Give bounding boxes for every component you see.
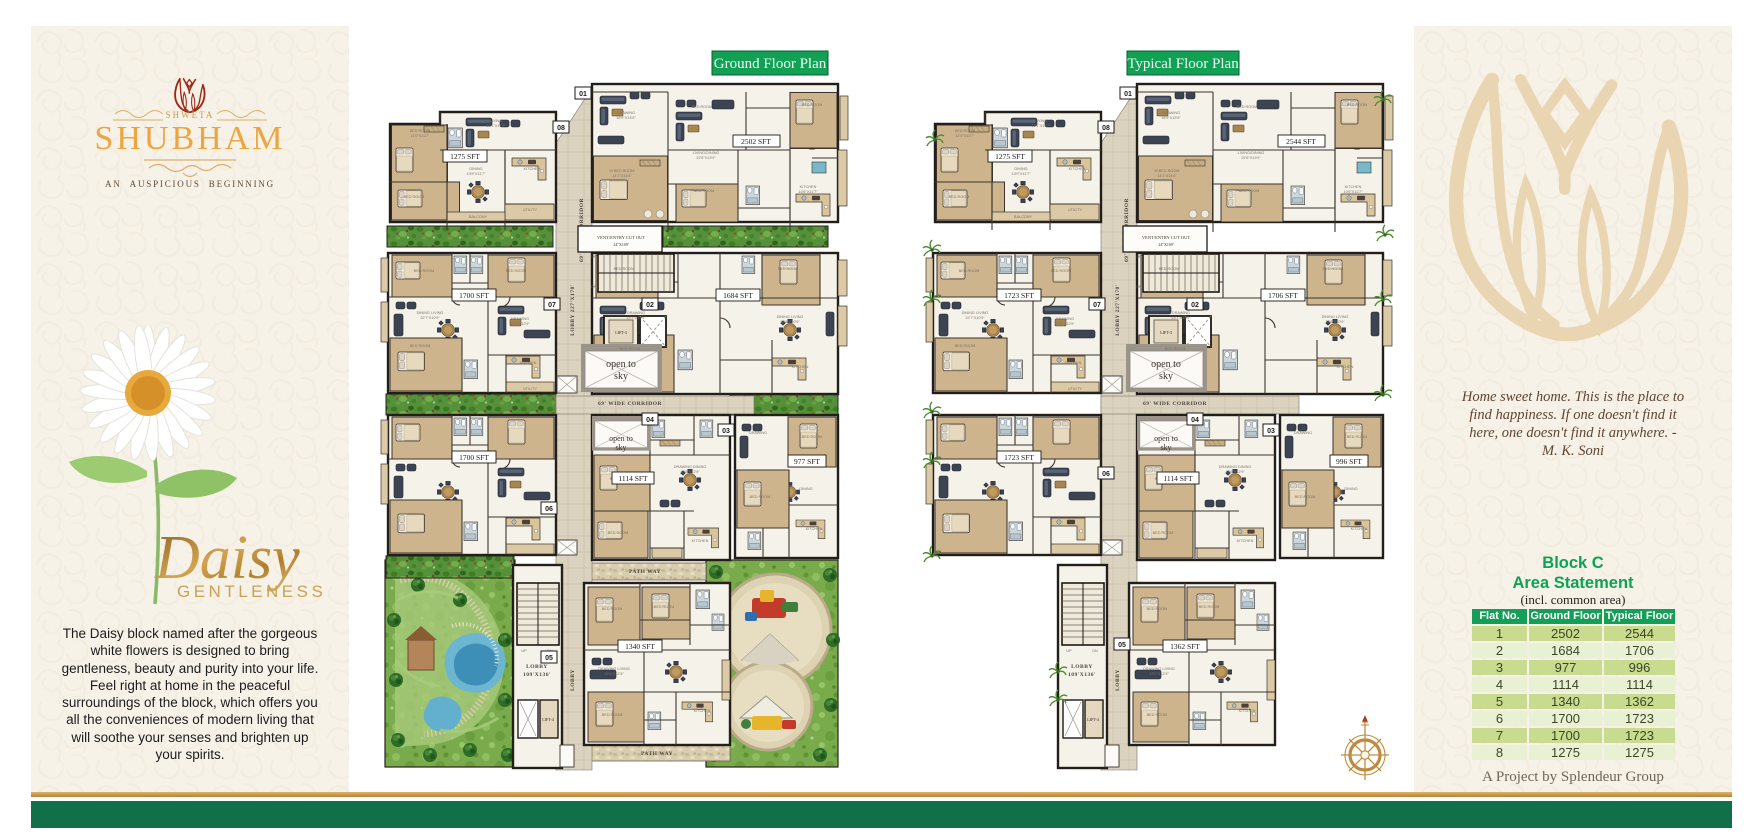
svg-text:UP: UP — [592, 255, 598, 259]
svg-text:03: 03 — [1267, 428, 1275, 435]
svg-text:24"X109': 24"X109' — [613, 242, 629, 247]
svg-text:11'0"X11'7": 11'0"X11'7" — [411, 134, 430, 138]
svg-text:1700 SFT: 1700 SFT — [459, 453, 489, 462]
svg-text:DINING LIVING: DINING LIVING — [777, 315, 804, 319]
svg-text:DN: DN — [591, 285, 597, 289]
svg-text:1362 SFT: 1362 SFT — [1170, 642, 1200, 651]
svg-text:LOBBY: LOBBY — [570, 669, 576, 691]
svg-text:1723 SFT: 1723 SFT — [1004, 291, 1034, 300]
svg-text:02: 02 — [1191, 302, 1199, 309]
svg-text:LOBBY: LOBBY — [526, 664, 548, 670]
svg-text:UP: UP — [521, 649, 527, 653]
svg-text:sky: sky — [615, 443, 626, 452]
svg-text:13'9"X11'7": 13'9"X11'7" — [466, 172, 486, 176]
svg-text:07: 07 — [548, 302, 556, 309]
svg-text:LIVING: LIVING — [490, 119, 502, 123]
svg-text:DRAWING: DRAWING — [511, 317, 529, 321]
svg-text:1706 SFT: 1706 SFT — [1268, 291, 1298, 300]
svg-text:open to: open to — [606, 359, 636, 370]
svg-text:01: 01 — [579, 91, 587, 98]
svg-text:1114 SFT: 1114 SFT — [618, 474, 648, 483]
svg-text:BED ROOM: BED ROOM — [404, 195, 425, 199]
svg-text:06: 06 — [1102, 471, 1110, 478]
svg-text:BED ROOM: BED ROOM — [614, 267, 635, 271]
svg-text:UTILITY: UTILITY — [523, 208, 538, 212]
svg-text:Ground Floor Plan: Ground Floor Plan — [714, 56, 827, 72]
svg-text:LIFT-3: LIFT-3 — [615, 330, 626, 335]
svg-text:DRAWING: DRAWING — [617, 111, 635, 115]
svg-text:open to: open to — [609, 434, 633, 443]
svg-text:996 SFT: 996 SFT — [1336, 457, 1362, 466]
svg-text:16'9"X13'9": 16'9"X13'9" — [616, 116, 636, 120]
svg-text:16'1"X11'7": 16'1"X11'7" — [486, 124, 506, 128]
svg-text:KITCHEN: KITCHEN — [694, 709, 711, 713]
svg-text:05: 05 — [1118, 642, 1126, 649]
svg-text:LIFT-4: LIFT-4 — [542, 717, 553, 722]
svg-text:DRAWING LIVING: DRAWING LIVING — [598, 667, 630, 671]
svg-text:14'1"X14'6": 14'1"X14'6" — [612, 174, 632, 178]
svg-text:M.BED ROOM: M.BED ROOM — [610, 169, 635, 173]
svg-text:13'7"X12'9": 13'7"X12'9" — [626, 316, 646, 320]
svg-text:BED ROOM: BED ROOM — [506, 269, 527, 273]
svg-text:BED ROOM: BED ROOM — [692, 105, 713, 109]
svg-text:DINING LIVING: DINING LIVING — [417, 311, 444, 315]
svg-text:08: 08 — [1102, 125, 1110, 132]
svg-text:22'7"X10'9": 22'7"X10'9" — [420, 316, 440, 320]
svg-text:1723 SFT: 1723 SFT — [1004, 453, 1034, 462]
svg-text:1275 SFT: 1275 SFT — [995, 152, 1025, 161]
svg-text:1684 SFT: 1684 SFT — [723, 291, 753, 300]
svg-text:109'X136': 109'X136' — [523, 672, 551, 678]
svg-text:2502 SFT: 2502 SFT — [741, 137, 771, 146]
svg-text:DRAWING: DRAWING — [627, 311, 645, 315]
svg-text:1114 SFT: 1114 SFT — [1163, 474, 1193, 483]
svg-text:1700 SFT: 1700 SFT — [459, 291, 489, 300]
svg-text:KITCHEN: KITCHEN — [800, 185, 817, 189]
svg-text:PATH WAY: PATH WAY — [629, 569, 661, 575]
svg-text:UTILITY: UTILITY — [523, 387, 538, 391]
svg-text:KITCHEN: KITCHEN — [692, 539, 709, 543]
svg-text:03: 03 — [722, 428, 730, 435]
svg-text:DRAWING: DRAWING — [749, 431, 767, 435]
svg-text:BED ROOM: BED ROOM — [608, 531, 629, 535]
svg-text:977 SFT: 977 SFT — [794, 457, 820, 466]
svg-text:DINING: DINING — [799, 487, 812, 491]
svg-text:VENT/ENTRY CUT OUT: VENT/ENTRY CUT OUT — [597, 235, 645, 240]
svg-text:KITCHEN: KITCHEN — [524, 167, 541, 171]
svg-text:KITCHEN: KITCHEN — [806, 527, 823, 531]
svg-text:08: 08 — [557, 125, 565, 132]
svg-text:BED ROOM: BED ROOM — [414, 269, 435, 273]
svg-text:KITCHEN: KITCHEN — [520, 361, 537, 365]
svg-text:BED ROOM: BED ROOM — [802, 103, 823, 107]
svg-text:13'9"X12'3": 13'9"X12'3" — [604, 672, 624, 676]
svg-text:BED ROOM: BED ROOM — [620, 347, 641, 351]
svg-text:07: 07 — [1093, 302, 1101, 309]
svg-text:PATH WAY: PATH WAY — [641, 751, 673, 757]
svg-text:04: 04 — [1191, 417, 1199, 424]
svg-text:BED ROOM: BED ROOM — [694, 189, 715, 193]
svg-text:KITCHEN: KITCHEN — [792, 365, 809, 369]
svg-text:13'9"X12'9": 13'9"X12'9" — [680, 470, 700, 474]
svg-text:BED ROOM: BED ROOM — [750, 495, 771, 499]
svg-text:BED ROOM: BED ROOM — [602, 713, 623, 717]
svg-text:04: 04 — [646, 417, 654, 424]
svg-text:BALCONY: BALCONY — [469, 215, 488, 219]
svg-text:69' WIDE CORRIDOR: 69' WIDE CORRIDOR — [598, 401, 663, 407]
svg-text:1340 SFT: 1340 SFT — [625, 642, 655, 651]
svg-text:02: 02 — [646, 302, 654, 309]
svg-text:BED ROOM: BED ROOM — [410, 129, 431, 133]
svg-text:DINING: DINING — [469, 167, 482, 171]
svg-text:BED ROOM: BED ROOM — [654, 605, 675, 609]
svg-text:1275 SFT: 1275 SFT — [450, 152, 480, 161]
svg-text:05: 05 — [545, 655, 553, 662]
svg-text:13'9"X12'9": 13'9"X12'9" — [510, 322, 530, 326]
svg-text:BED ROOM: BED ROOM — [778, 267, 799, 271]
svg-text:01: 01 — [1124, 91, 1132, 98]
svg-text:BED ROOM: BED ROOM — [602, 607, 623, 611]
svg-text:DRAWING DINING: DRAWING DINING — [674, 465, 707, 469]
svg-text:13'8"X10'9": 13'8"X10'9" — [780, 320, 800, 324]
svg-text:2544 SFT: 2544 SFT — [1286, 137, 1316, 146]
svg-text:22'6"X13'9": 22'6"X13'9" — [696, 156, 716, 160]
svg-text:LIVING/DINING: LIVING/DINING — [693, 151, 720, 155]
svg-text:06: 06 — [545, 506, 553, 513]
svg-text:LOBBY 227'X170': LOBBY 227'X170' — [570, 284, 576, 335]
svg-text:BED ROOM: BED ROOM — [802, 435, 823, 439]
svg-text:10'6"X11'7": 10'6"X11'7" — [798, 190, 818, 194]
svg-text:BED ROOM: BED ROOM — [410, 344, 431, 348]
svg-text:Typical Floor Plan: Typical Floor Plan — [1127, 56, 1239, 72]
svg-text:sky: sky — [614, 371, 628, 382]
